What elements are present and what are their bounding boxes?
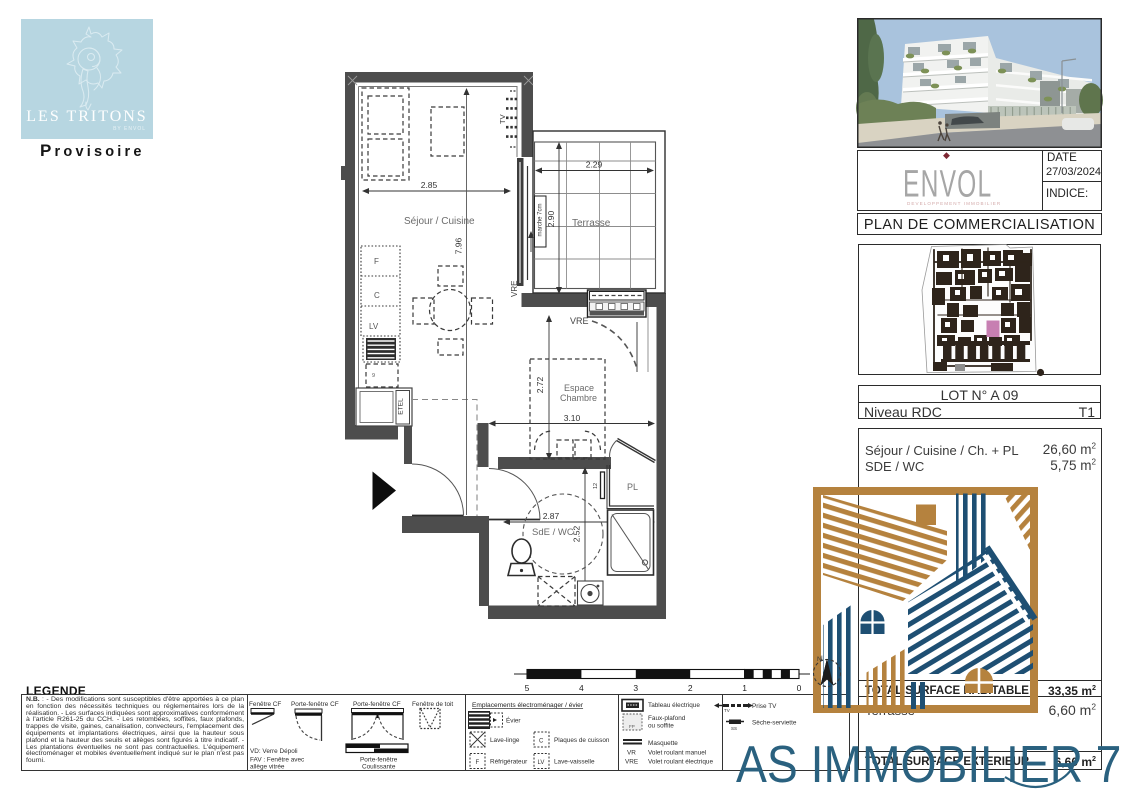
- svg-text:3: 3: [633, 683, 638, 693]
- svg-text:Terrasse: Terrasse: [572, 218, 611, 229]
- svg-text:3.10: 3.10: [564, 413, 581, 423]
- svg-text:12: 12: [593, 483, 599, 489]
- svg-text:VRE: VRE: [510, 281, 519, 297]
- svg-text:N: N: [818, 655, 823, 662]
- svg-text:PL: PL: [627, 482, 638, 492]
- svg-text:2.29: 2.29: [586, 160, 603, 170]
- svg-text:2.90: 2.90: [546, 210, 556, 227]
- svg-text:2.85: 2.85: [421, 180, 438, 190]
- svg-text:Espace: Espace: [564, 383, 594, 393]
- svg-text:TV: TV: [498, 114, 507, 124]
- svg-text:marche 7cm: marche 7cm: [538, 203, 544, 236]
- svg-text:Séjour / Cuisine: Séjour / Cuisine: [404, 216, 475, 227]
- svg-text:4: 4: [579, 683, 584, 693]
- svg-text:2: 2: [688, 683, 693, 693]
- svg-text:0: 0: [797, 683, 802, 693]
- svg-text:SdE / WC: SdE / WC: [532, 527, 574, 538]
- svg-text:VRE: VRE: [570, 316, 589, 326]
- svg-text:2.52: 2.52: [572, 525, 582, 542]
- svg-text:9: 9: [372, 373, 375, 379]
- svg-text:7.96: 7.96: [454, 237, 464, 254]
- svg-text:5: 5: [525, 683, 530, 693]
- svg-text:2.72: 2.72: [535, 376, 545, 393]
- svg-text:ETEL: ETEL: [398, 398, 405, 415]
- svg-text:2.87: 2.87: [543, 511, 560, 521]
- svg-text:1: 1: [742, 683, 747, 693]
- svg-text:C: C: [374, 291, 380, 300]
- svg-text:LV: LV: [369, 322, 379, 331]
- svg-text:F: F: [374, 257, 379, 266]
- svg-text:N: N: [817, 656, 822, 663]
- svg-text:Chambre: Chambre: [560, 393, 597, 403]
